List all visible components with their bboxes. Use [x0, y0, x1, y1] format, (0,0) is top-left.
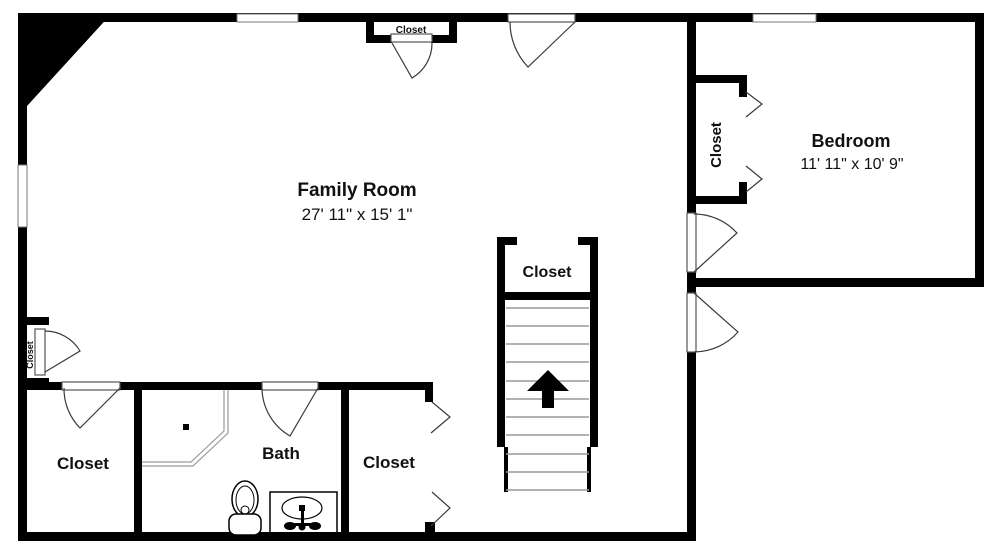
floor-plan-drawing: Family Room 27' 11" x 15' 1" Bedroom 11'…	[0, 0, 1000, 548]
wall-bath-closetbm	[341, 390, 349, 532]
bedroom-closet-bottom-stub	[739, 182, 747, 196]
bedroom-closet-top-stub	[739, 83, 747, 97]
wall-right	[975, 13, 984, 287]
hall-door-leaf	[687, 293, 696, 352]
wall-bedroom-bottom	[687, 278, 984, 287]
bath-label: Bath	[262, 444, 300, 463]
closet-bl-door-leaf	[62, 382, 120, 390]
bedroom-door-leaf	[687, 213, 696, 272]
corner-chamfer	[18, 13, 112, 106]
closet-top-door-swing	[392, 43, 432, 78]
bedroom-closet-bifold-icon	[746, 92, 762, 192]
family-room-door-swing	[510, 22, 575, 67]
faucet-icon	[284, 505, 321, 531]
bath-door-swing	[262, 388, 318, 436]
floor-plan: Family Room 27' 11" x 15' 1" Bedroom 11'…	[0, 0, 1000, 548]
bedroom-label: Bedroom	[811, 131, 890, 151]
bedroom-closet-bottom-wall	[687, 196, 747, 204]
closet-stairs-label: Closet	[523, 264, 573, 281]
windows	[18, 14, 816, 227]
closet-small-left-door-swing	[45, 331, 80, 372]
niche-left-stub-bottom	[27, 378, 49, 386]
closet-small-left-door-leaf	[35, 329, 45, 375]
labels: Family Room 27' 11" x 15' 1" Bedroom 11'…	[25, 25, 904, 473]
hall-door-swing	[694, 293, 738, 352]
closet-bedroom-label: Closet	[708, 122, 725, 168]
closet-top-label: Closet	[396, 25, 427, 36]
bath-door-leaf	[262, 382, 318, 390]
wall-divider-mid	[687, 272, 696, 293]
family-room-dimensions: 27' 11" x 15' 1"	[302, 205, 413, 224]
window-left-family	[18, 165, 27, 227]
bedroom-dimensions: 11' 11" x 10' 9"	[800, 156, 903, 173]
niche-left-stub-top	[27, 317, 49, 325]
family-room-label: Family Room	[297, 180, 416, 201]
window-bedroom	[753, 14, 816, 22]
bedroom-door-swing	[694, 214, 737, 272]
shower-drain-icon	[183, 424, 189, 430]
stair-wall-left-lip	[497, 237, 517, 245]
wall-closetbl-bath	[134, 390, 142, 532]
toilet	[229, 481, 261, 535]
closet-bl-door-swing	[64, 388, 120, 428]
bathroom-fixtures	[142, 390, 337, 535]
wall-divider-upper	[687, 22, 696, 213]
doors	[35, 14, 762, 526]
wall-divider-lower	[687, 352, 696, 541]
stair-wall-right-lip	[578, 237, 598, 245]
stairs-up-arrow-icon	[527, 370, 569, 408]
family-room-door-leaf	[508, 14, 575, 22]
wall-bottom	[18, 532, 696, 541]
wall-left	[18, 96, 27, 541]
sink-vanity	[270, 492, 337, 535]
toilet-flush-icon	[241, 506, 249, 514]
stair-wall-right	[590, 237, 598, 447]
stair-closet-bottom-wall	[497, 292, 598, 300]
niche-top-right-lip	[431, 35, 457, 43]
closet-small-left-label: Closet	[25, 341, 35, 369]
closet-bottom-left-label: Closet	[57, 454, 109, 473]
closet-bm-bifold-icon	[431, 402, 450, 526]
bedroom-closet-top-wall	[687, 75, 747, 83]
stair-wall-left	[497, 237, 505, 447]
wall-top	[18, 13, 984, 22]
wall-bath-top-stub	[425, 390, 433, 402]
toilet-tank	[229, 514, 261, 535]
niche-top-left-lip	[366, 35, 392, 43]
closet-bottom-middle-label: Closet	[363, 453, 415, 472]
window-top-family	[237, 14, 298, 22]
